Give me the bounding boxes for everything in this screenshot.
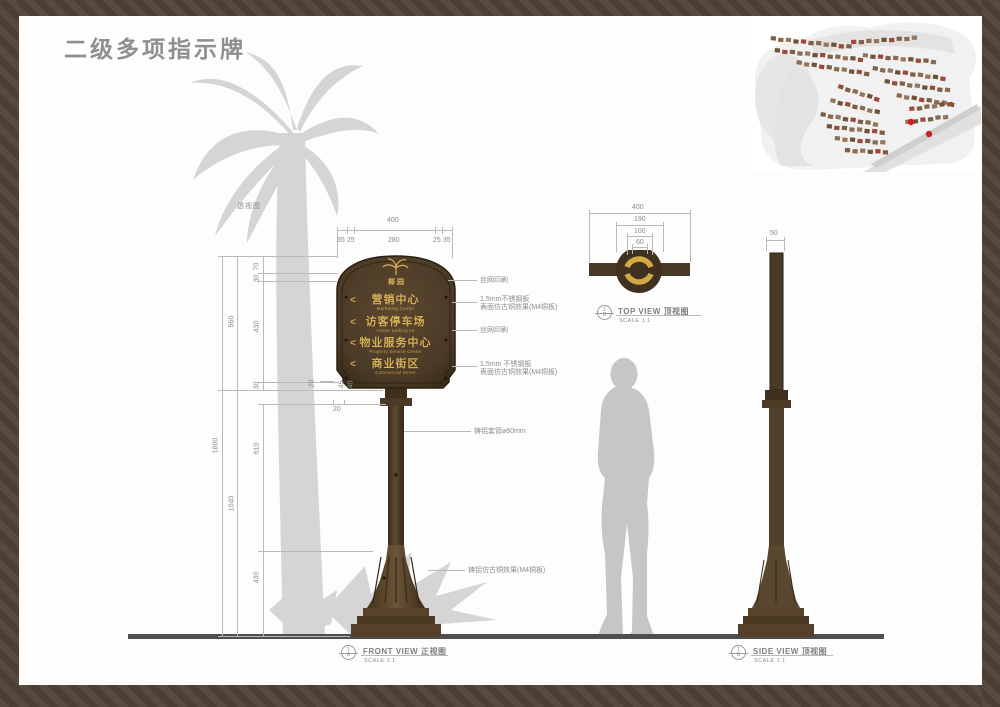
dim-top-100: 100: [634, 228, 646, 235]
front-view-ref-circle: 1 A: [341, 645, 356, 660]
person-head: [611, 358, 638, 390]
page-title: 二级多项指示牌: [64, 30, 246, 64]
base-step-2: [357, 616, 435, 624]
side-panel: [770, 253, 783, 390]
ref-letter: B: [732, 652, 745, 658]
sign-row-en: Property Service Center: [339, 349, 452, 354]
ref-number: 1: [732, 647, 745, 653]
map-marker-1: [908, 119, 914, 125]
annotation-silkscreen-1: 丝网印刷: [480, 277, 508, 285]
side-pole: [769, 408, 784, 546]
pole-screw: [394, 473, 397, 476]
annotation-sleeve: 铸铝套管⌀60mm: [474, 428, 526, 436]
palm-trunk: [276, 133, 325, 636]
top-view-scale: SCALE 1:1: [619, 318, 651, 324]
annotation-line: 1.5mm 不锈钢板: [480, 361, 557, 369]
top-view-ref-circle: 1 B: [597, 305, 612, 320]
map-marker-2: [926, 131, 932, 137]
leader-line: [452, 330, 477, 331]
frame-border-top: [0, 0, 1000, 16]
leader-line: [452, 366, 477, 367]
side-collar: [762, 400, 791, 408]
frame-border-bottom: [0, 685, 1000, 707]
dim-pole-height: 610: [253, 443, 260, 455]
side-step-2: [743, 616, 809, 624]
sign-row-4: < 商业街区 Commercial Street: [339, 359, 452, 375]
dim-panel-height: 560: [228, 316, 235, 328]
front-view-scale: SCALE 1:1: [364, 658, 396, 664]
dim-below-height: 1040: [228, 496, 235, 512]
leader-line: [448, 280, 477, 281]
sign-row-en: Marketing Center: [339, 306, 452, 311]
left-arrow-icon: <: [350, 359, 356, 370]
dim-side-50: 50: [770, 230, 778, 237]
dim-seg: 430: [253, 321, 260, 333]
base-screw: [382, 576, 385, 579]
side-step-3: [738, 624, 814, 637]
side-view-scale: SCALE 1:1: [754, 658, 786, 664]
dim-top-190: 190: [634, 216, 646, 223]
leader-line: [404, 431, 471, 432]
dim-small: 20: [333, 406, 341, 413]
left-arrow-icon: <: [350, 295, 356, 306]
dim-seg: 70: [253, 263, 260, 271]
design-sheet: 二级多项指示牌 透视图: [0, 0, 1000, 707]
annotation-silkscreen-2: 丝网印刷: [480, 327, 508, 335]
dim-seg: 35: [443, 237, 451, 244]
side-step-1: [748, 608, 804, 616]
sign-row-1: < 营销中心 Marketing Center: [339, 295, 452, 311]
left-arrow-icon: <: [350, 338, 356, 349]
annotation-line: 表面仿古铜效果(M4铜板): [480, 369, 557, 377]
annotation-line: 1.5mm不锈钢板: [480, 296, 557, 304]
leader-line: [428, 570, 465, 571]
sign-row-2: < 访客停车场 Visitor parking lot: [339, 317, 452, 333]
dim-top-60: 60: [636, 239, 644, 246]
side-neck: [765, 390, 788, 400]
dim-seg: 25: [433, 237, 441, 244]
annotation-cast-aluminum: 铸铝仿古铜效果(M4铜板): [468, 567, 545, 575]
sign-logo-text: 椰园: [381, 277, 413, 287]
base-step-1: [363, 608, 429, 616]
leader-line: [452, 302, 477, 303]
person-silhouette: [588, 352, 698, 642]
pole-neck: [385, 388, 407, 398]
dim-line: [222, 256, 223, 636]
dim-seg: 25: [347, 237, 355, 244]
dim-small: 40: [347, 381, 354, 389]
ref-number: 1: [598, 307, 611, 313]
side-view-sign: [730, 245, 822, 645]
ref-letter: A: [342, 652, 355, 658]
dim-top-400: 400: [632, 204, 644, 211]
dim-seg: 30: [253, 275, 260, 283]
annotation-steel-1: 1.5mm不锈钢板 表面仿古铜效果(M4铜板): [480, 296, 557, 312]
top-view-sign: [585, 250, 695, 295]
dim-total-height: 1600: [212, 438, 219, 454]
dim-base-height: 430: [253, 572, 260, 584]
dim-small: 20: [308, 380, 315, 388]
frame-border-right: [982, 0, 1000, 707]
left-arrow-icon: <: [350, 317, 356, 328]
annotation-line: 表面仿古铜效果(M4铜板): [480, 304, 557, 312]
dim-seg: 35: [337, 237, 345, 244]
sign-row-en: Commercial Street: [339, 370, 452, 375]
site-map: [751, 14, 981, 172]
sign-row-3: < 物业服务中心 Property Service Center: [339, 338, 452, 354]
ref-letter: B: [598, 312, 611, 318]
scene-label: 透视图: [237, 203, 261, 210]
side-view-ref-circle: 1 B: [731, 645, 746, 660]
dim-seg: 30: [253, 382, 260, 390]
frame-border-left: [0, 0, 19, 707]
annotation-steel-2: 1.5mm 不锈钢板 表面仿古铜效果(M4铜板): [480, 361, 557, 377]
sign-row-en: Visitor parking lot: [339, 328, 452, 333]
dim-front-width-total: 400: [387, 217, 399, 224]
base-step-3: [351, 624, 441, 637]
dim-seg: 280: [388, 237, 400, 244]
dim-small: 45: [338, 381, 345, 389]
ref-number: 1: [342, 647, 355, 653]
